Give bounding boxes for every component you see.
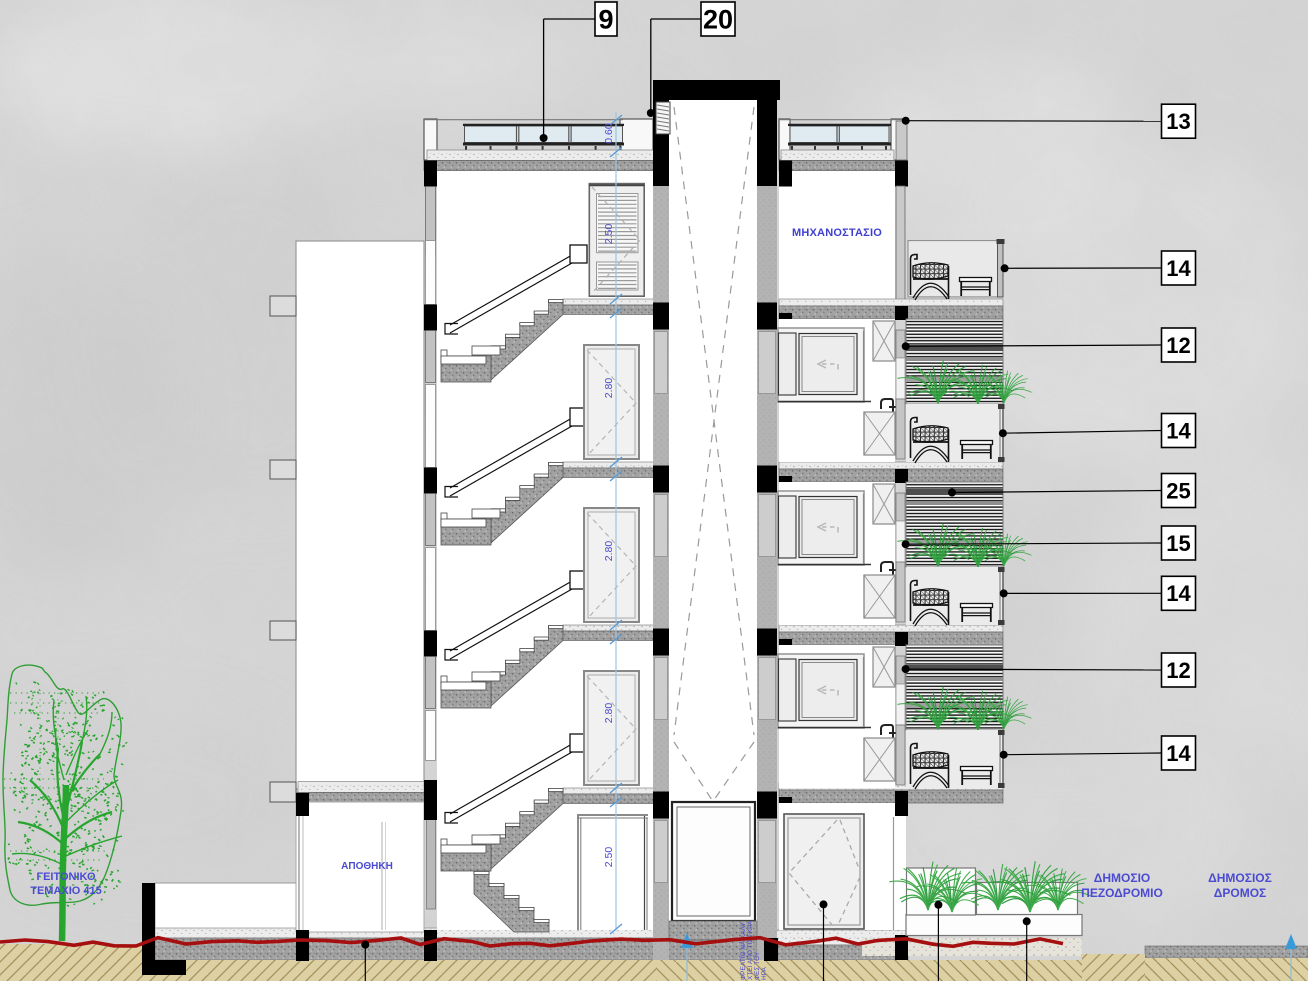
svg-text:ΔΡΟΜΟΣ: ΔΡΟΜΟΣ <box>1214 886 1267 900</box>
svg-text:ΦΡΕΑΤΙΟ ΝΑ ΚΑΛΥ: ΦΡΕΑΤΙΟ ΝΑ ΚΑΛΥ <box>740 922 747 980</box>
svg-text:25: 25 <box>1166 478 1190 503</box>
svg-text:12: 12 <box>1166 333 1190 358</box>
svg-text:20: 20 <box>703 5 733 35</box>
svg-text:2.80: 2.80 <box>603 703 615 724</box>
svg-text:14: 14 <box>1166 741 1191 766</box>
svg-text:ΧΤΕΙ ΑΠΟ ΤΙΣ ΓΚΡΑ: ΧΤΕΙ ΑΠΟ ΤΙΣ ΓΚΡΑ <box>747 920 754 980</box>
svg-text:2.80: 2.80 <box>603 378 615 399</box>
svg-text:0.60: 0.60 <box>603 123 615 144</box>
svg-text:15: 15 <box>1166 531 1190 556</box>
svg-text:ΔΗΜΟΣΙΟΣ: ΔΗΜΟΣΙΟΣ <box>1208 871 1272 885</box>
svg-text:9: 9 <box>598 5 613 35</box>
svg-text:ΦΕΣ ΤΟΥ: ΦΕΣ ΤΟΥ <box>754 951 761 980</box>
svg-text:ΓΕΙΤΟΝΙΚΟ: ΓΕΙΤΟΝΙΚΟ <box>36 871 96 883</box>
svg-text:ΜΗΧΑΝΟΣΤΑΣΙΟ: ΜΗΧΑΝΟΣΤΑΣΙΟ <box>792 227 882 239</box>
svg-text:14: 14 <box>1166 256 1191 281</box>
svg-text:13: 13 <box>1166 109 1190 134</box>
svg-text:ΤΕΜΑΧΙΟ 415: ΤΕΜΑΧΙΟ 415 <box>30 885 102 897</box>
svg-text:2.50: 2.50 <box>603 847 615 868</box>
svg-text:2.80: 2.80 <box>603 541 615 562</box>
svg-text:ΗΡΑ: ΗΡΑ <box>761 966 768 980</box>
svg-text:14: 14 <box>1166 418 1191 443</box>
svg-text:12: 12 <box>1166 658 1190 683</box>
svg-text:ΠΕΖΟΔΡΟΜΙΟ: ΠΕΖΟΔΡΟΜΙΟ <box>1081 886 1163 900</box>
svg-text:ΑΠΟΘΗΚΗ: ΑΠΟΘΗΚΗ <box>341 861 393 872</box>
svg-text:ΔΗΜΟΣΙΟ: ΔΗΜΟΣΙΟ <box>1094 871 1151 885</box>
svg-text:14: 14 <box>1166 581 1191 606</box>
svg-text:2.50: 2.50 <box>603 224 615 245</box>
